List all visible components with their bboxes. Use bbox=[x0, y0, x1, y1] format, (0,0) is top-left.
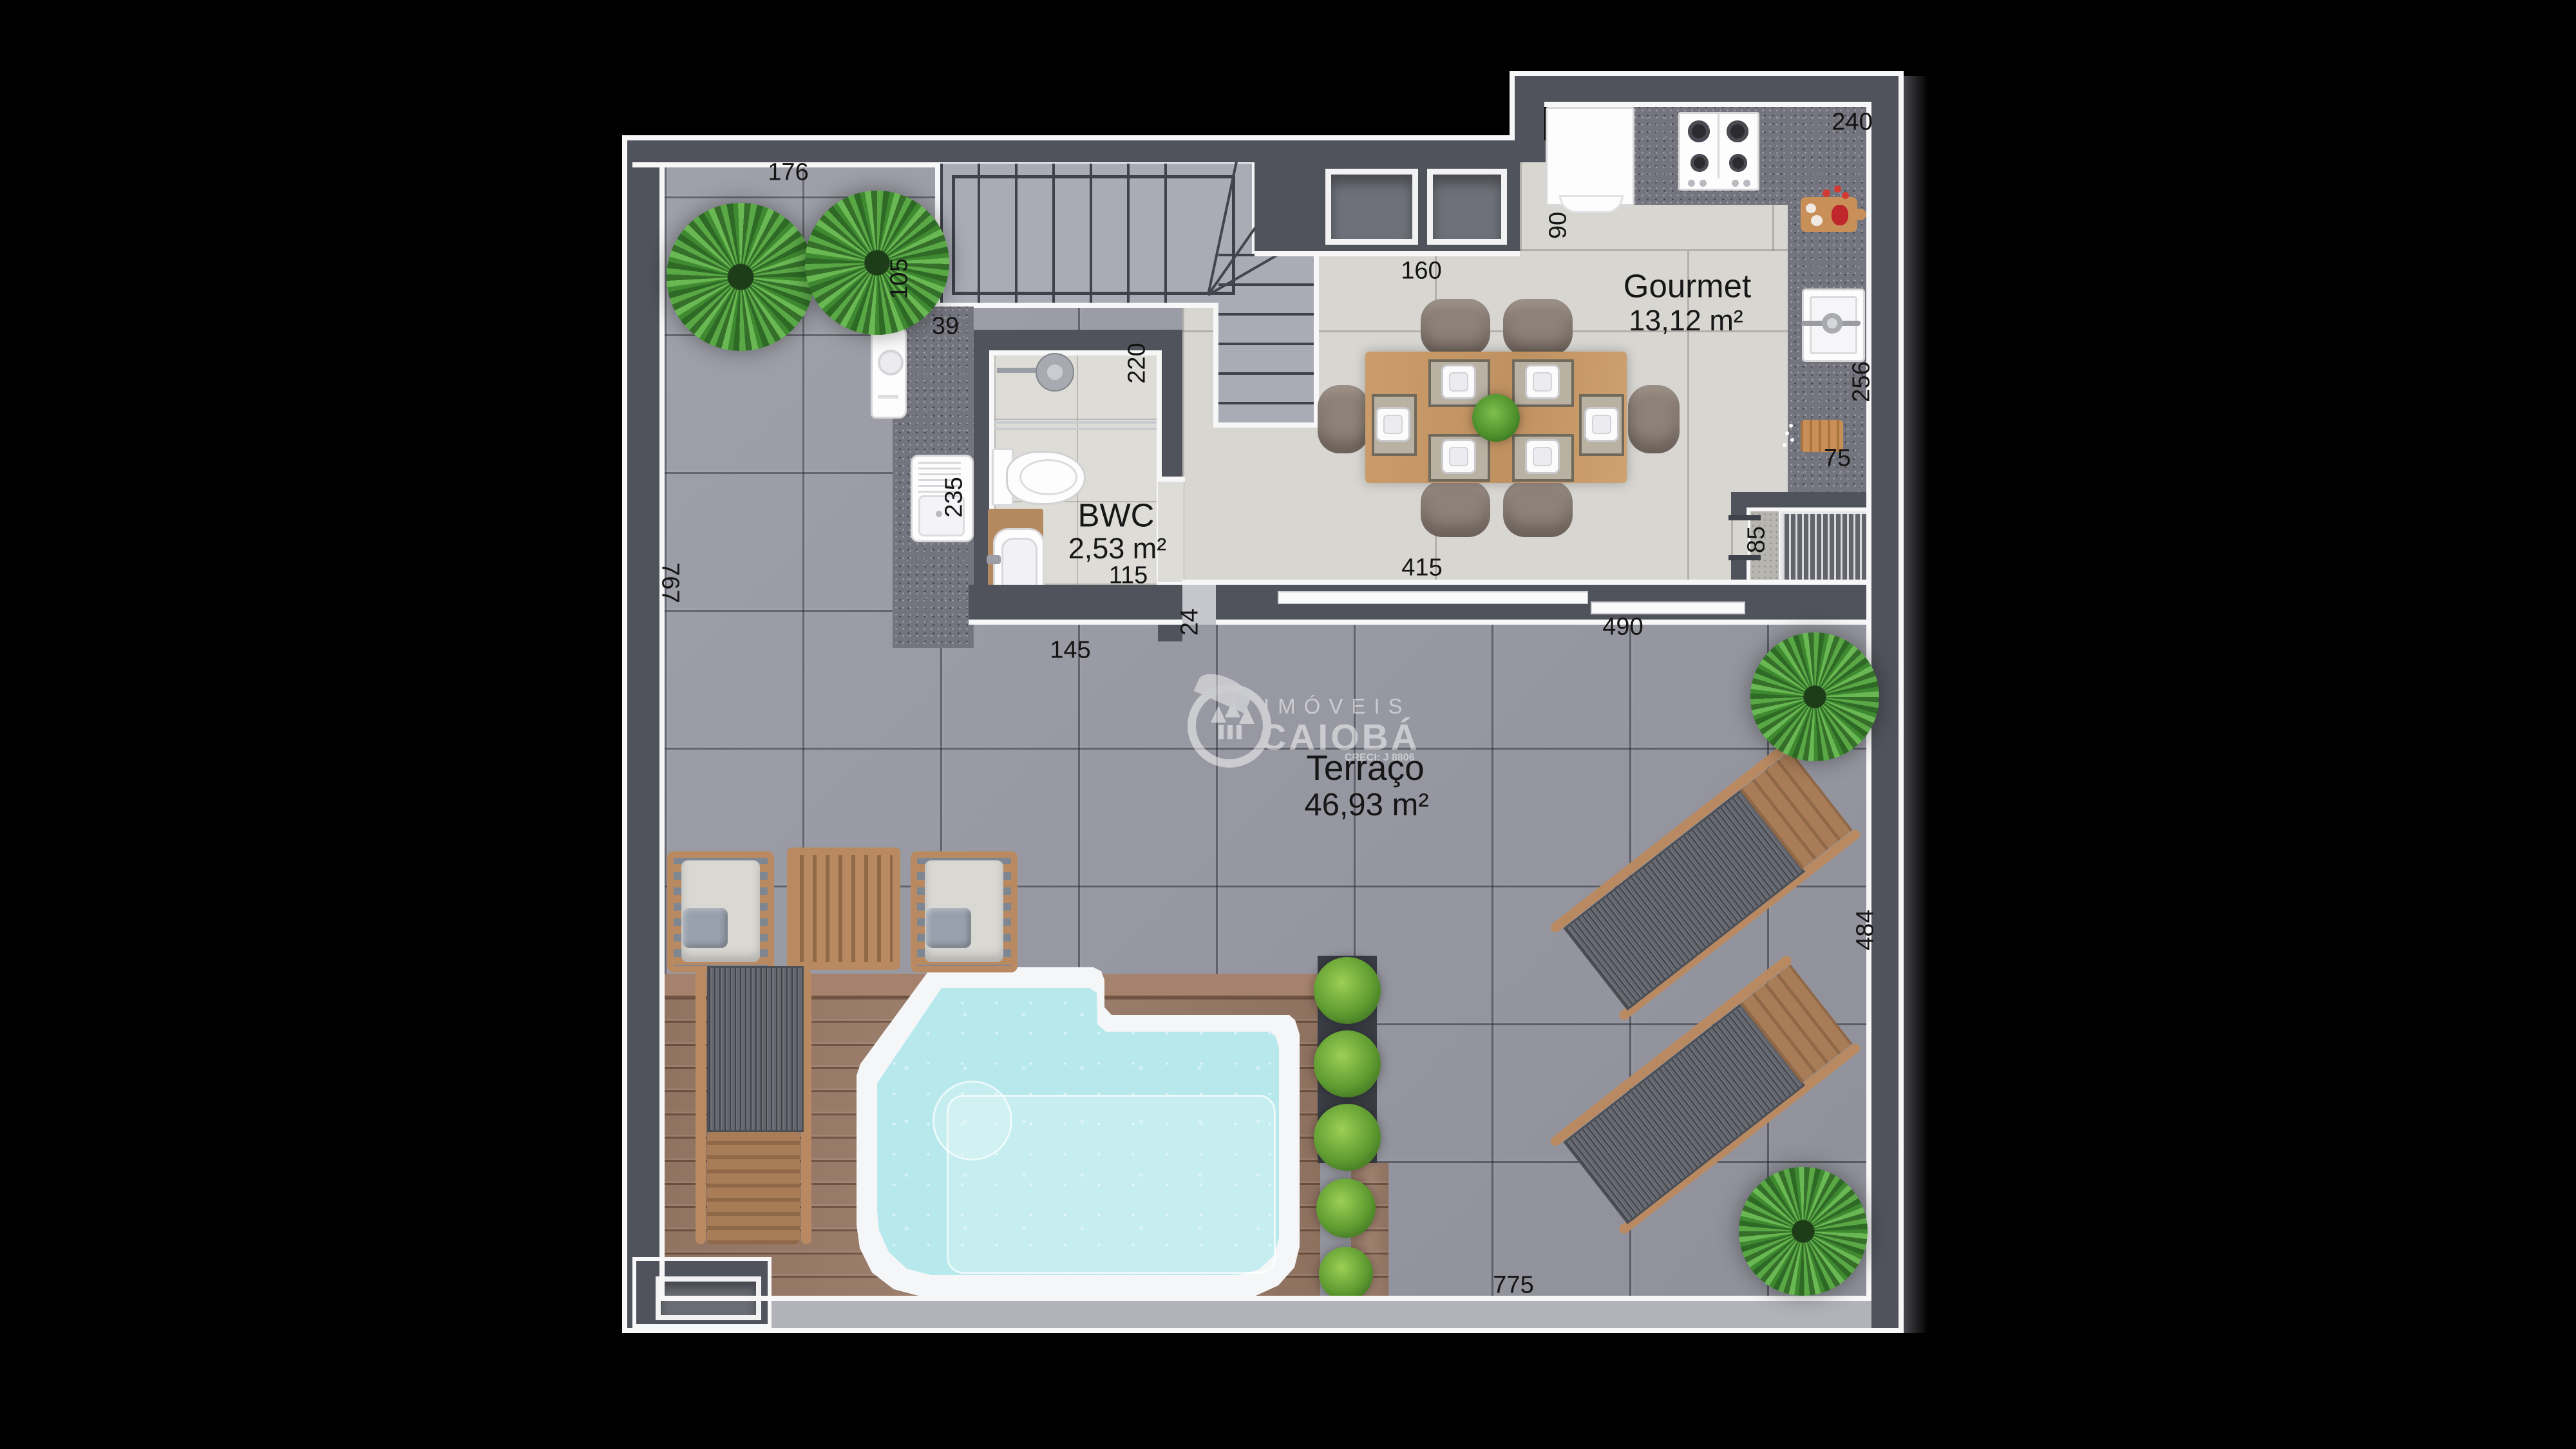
washing-machine-icon bbox=[871, 326, 907, 419]
dim-220: 220 bbox=[1124, 343, 1151, 383]
dim-176: 176 bbox=[768, 159, 808, 187]
shrub-icon bbox=[1314, 1104, 1381, 1171]
stove-knob bbox=[1743, 180, 1750, 187]
cooktop-icon bbox=[1678, 112, 1759, 191]
room-area-terraco: 46,93 m² bbox=[1304, 787, 1428, 823]
garlic-icon bbox=[1811, 215, 1823, 226]
plate-icon bbox=[1441, 365, 1476, 399]
room-label-terraco: Terraço bbox=[1306, 747, 1424, 788]
fridge-icon bbox=[1546, 107, 1634, 206]
sliding-door-panel bbox=[1591, 601, 1745, 614]
tick-mark bbox=[1728, 555, 1761, 560]
tomato-icon bbox=[1834, 185, 1841, 193]
cutting-board-icon bbox=[1801, 197, 1857, 232]
dim-105: 105 bbox=[886, 258, 914, 299]
burner-icon bbox=[1688, 120, 1710, 142]
dining-chair bbox=[1503, 299, 1573, 355]
fridge-handle bbox=[1559, 195, 1624, 213]
watermark-building-icon bbox=[1218, 725, 1224, 739]
plate-icon bbox=[1525, 439, 1560, 474]
faucet-flange bbox=[1822, 313, 1842, 334]
plate-icon bbox=[1525, 365, 1560, 399]
sun-lounger-left bbox=[696, 966, 811, 1248]
dim-767: 767 bbox=[656, 562, 684, 603]
kitchen-sink-icon bbox=[1802, 289, 1865, 362]
washer-drum bbox=[878, 350, 904, 375]
dim-484: 484 bbox=[1852, 909, 1880, 950]
building-shadow bbox=[1904, 76, 1928, 1333]
dim-85: 85 bbox=[1743, 526, 1771, 553]
armchair-towel bbox=[683, 908, 728, 948]
tick-mark bbox=[1728, 515, 1761, 520]
watermark-tree-icon bbox=[1211, 706, 1226, 723]
gourmet-floor-nook bbox=[1520, 162, 1546, 251]
lining bbox=[1544, 102, 1871, 107]
shower-glass bbox=[994, 421, 1157, 424]
tomato-icon bbox=[1842, 192, 1849, 199]
cooktop-divider bbox=[1718, 114, 1719, 178]
sliding-door-panel bbox=[1278, 591, 1588, 604]
garlic-icon bbox=[1806, 204, 1816, 213]
plate-icon bbox=[1584, 407, 1619, 442]
palm-plant-icon bbox=[667, 203, 815, 351]
shower-head-icon bbox=[1036, 353, 1074, 392]
pool-step-round bbox=[933, 1081, 1012, 1160]
lounger-foot-slats bbox=[707, 1132, 800, 1244]
room-label-bwc: BWC bbox=[1078, 497, 1155, 535]
wall-left bbox=[627, 140, 659, 1328]
dim-39: 39 bbox=[932, 313, 959, 341]
shrub-icon bbox=[1316, 1179, 1376, 1238]
stove-knob bbox=[1732, 180, 1739, 187]
lining bbox=[665, 1296, 1871, 1301]
stove-knob bbox=[1700, 180, 1707, 187]
dim-240: 240 bbox=[1832, 109, 1872, 137]
dim-775: 775 bbox=[1493, 1272, 1533, 1300]
washer-panel bbox=[878, 395, 898, 399]
dining-chair bbox=[1503, 480, 1573, 537]
dim-75: 75 bbox=[1824, 445, 1851, 473]
dim-24: 24 bbox=[1177, 609, 1204, 636]
outer-edge-top-right bbox=[1510, 71, 1904, 76]
door-jamb bbox=[1157, 477, 1185, 482]
floor-plan: IMÓVEIS CAIOBÁ CRECI: J 8806 Gourmet 13,… bbox=[0, 0, 2576, 1449]
dim-90: 90 bbox=[1545, 212, 1573, 239]
shower-glass bbox=[994, 428, 1157, 430]
dim-115: 115 bbox=[1109, 562, 1148, 590]
wall-bottom bbox=[772, 1301, 1871, 1328]
watermark-tree-icon bbox=[1239, 707, 1255, 724]
shrub-icon bbox=[1319, 1247, 1373, 1301]
outer-edge-left bbox=[622, 135, 627, 1333]
window bbox=[1427, 169, 1507, 245]
dim-235: 235 bbox=[941, 477, 969, 517]
dim-256: 256 bbox=[1848, 361, 1876, 402]
wall-top bbox=[627, 140, 1546, 162]
watermark-brand-top: IMÓVEIS bbox=[1264, 694, 1411, 719]
wall-top-gourmet bbox=[1515, 76, 1899, 102]
dim-160: 160 bbox=[1401, 258, 1441, 285]
toilet-seat bbox=[1019, 459, 1077, 495]
room-area-bwc: 2,53 m² bbox=[1068, 532, 1167, 565]
board-handle bbox=[1853, 209, 1866, 220]
centerpiece-plant-icon bbox=[1472, 394, 1520, 442]
salt-dots bbox=[1789, 424, 1793, 428]
tomato-icon bbox=[1823, 189, 1830, 197]
dim-145: 145 bbox=[1050, 637, 1090, 665]
burner-icon bbox=[1690, 154, 1709, 172]
dining-chair bbox=[1421, 299, 1490, 355]
outer-edge-step bbox=[1510, 71, 1515, 140]
stair-rail bbox=[952, 175, 1235, 295]
lining bbox=[659, 162, 665, 1301]
outer-edge-right bbox=[1899, 71, 1904, 1333]
shrub-icon bbox=[1314, 1030, 1381, 1097]
lining bbox=[1255, 251, 1520, 256]
lounger-rail bbox=[696, 970, 706, 1244]
pepper-icon bbox=[1832, 205, 1848, 225]
deck-side-table bbox=[787, 848, 900, 970]
shrub-icon bbox=[1314, 957, 1381, 1024]
outer-edge-bottom bbox=[622, 1328, 1904, 1333]
dining-chair bbox=[1318, 385, 1369, 453]
dining-chair bbox=[1628, 385, 1680, 453]
lining bbox=[969, 620, 1871, 625]
plate-icon bbox=[1376, 407, 1410, 442]
plate-icon bbox=[1441, 439, 1476, 474]
dim-415: 415 bbox=[1401, 554, 1442, 582]
stove-knob bbox=[1688, 180, 1695, 187]
burner-icon bbox=[1727, 120, 1748, 142]
room-label-gourmet: Gourmet bbox=[1624, 267, 1751, 305]
vanity-faucet-icon bbox=[987, 555, 1001, 564]
watermark-tree-icon bbox=[1225, 701, 1240, 717]
room-area-gourmet: 13,12 m² bbox=[1629, 304, 1743, 337]
outer-edge-top-left bbox=[622, 135, 1520, 140]
deck-armchair bbox=[911, 851, 1018, 972]
lining bbox=[1182, 580, 1871, 585]
burner-icon bbox=[1729, 154, 1747, 172]
armchair-towel bbox=[926, 908, 971, 948]
dim-490: 490 bbox=[1602, 614, 1643, 641]
deck-armchair bbox=[667, 851, 774, 972]
dining-chair bbox=[1421, 480, 1490, 537]
lounger-fabric bbox=[707, 966, 804, 1132]
window bbox=[1325, 169, 1418, 245]
toilet-bowl-icon bbox=[1006, 451, 1086, 505]
